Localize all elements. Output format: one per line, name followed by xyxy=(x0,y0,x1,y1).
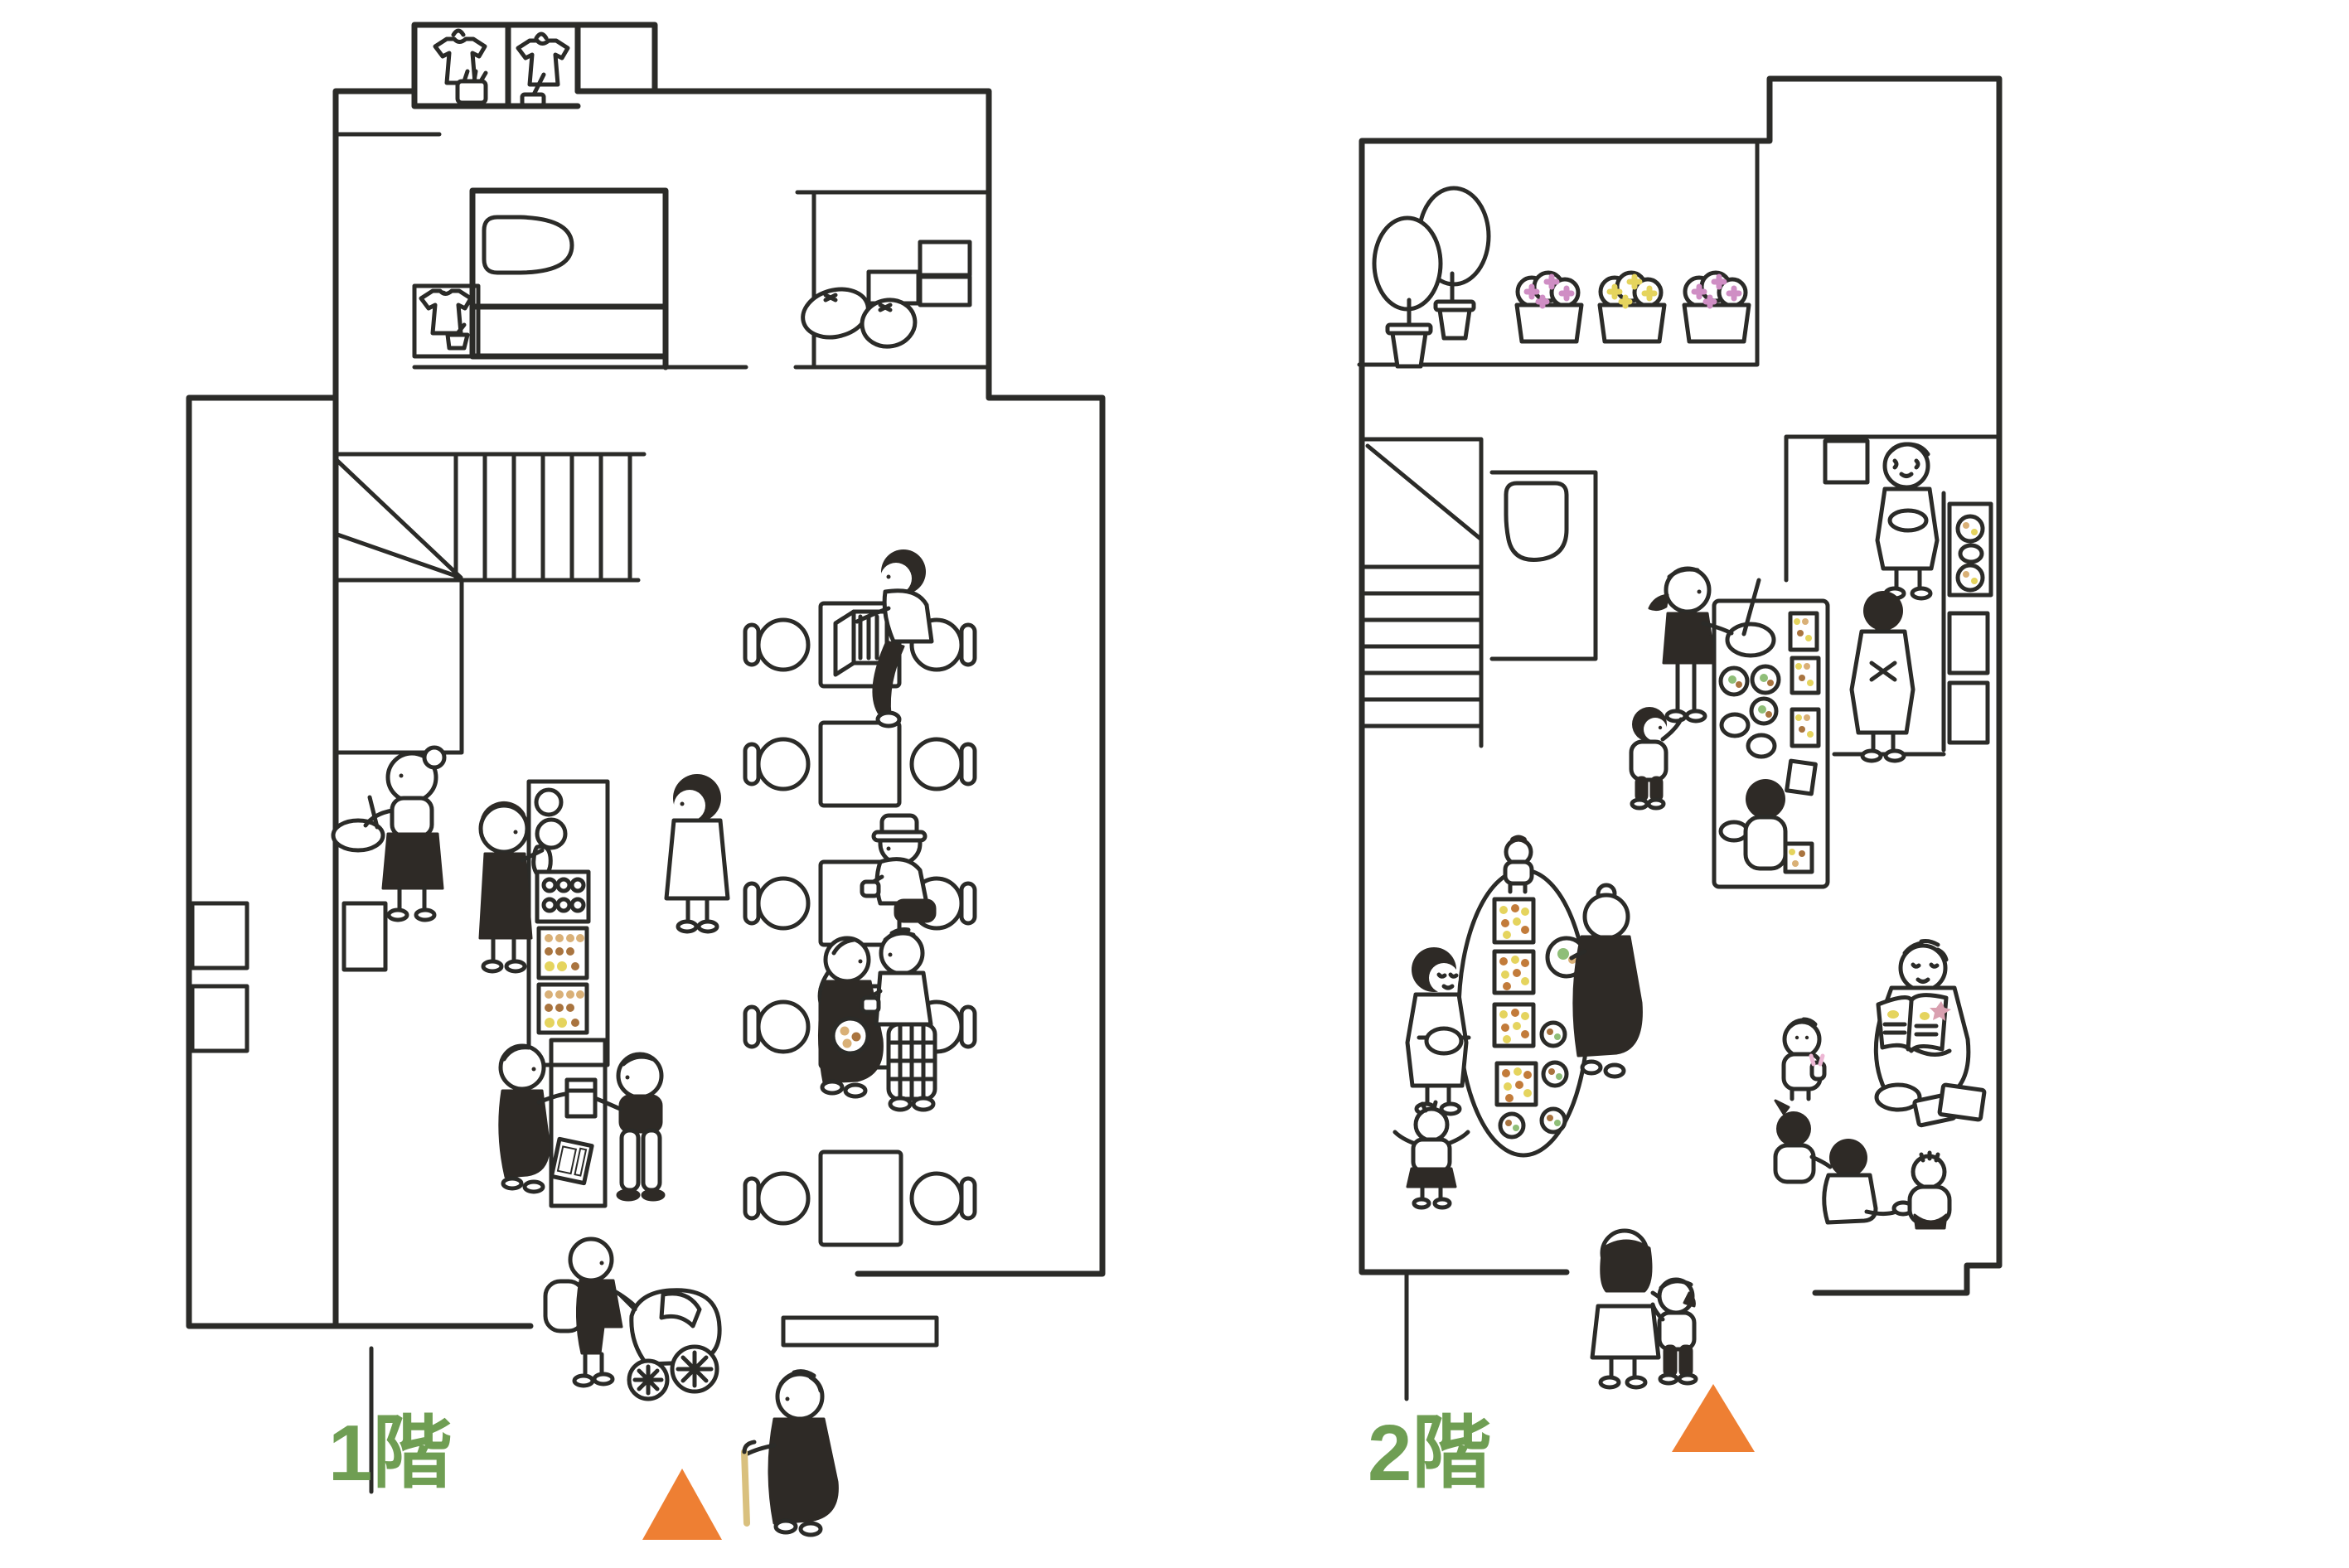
blue-pot-icon xyxy=(1426,1028,1461,1053)
leg xyxy=(1664,1346,1676,1376)
bowl-icon xyxy=(1721,822,1747,840)
wall-cabinet xyxy=(192,986,247,1051)
plate xyxy=(1960,545,1982,562)
hair-back xyxy=(1746,779,1785,819)
body xyxy=(1631,742,1666,780)
yellow-shirt-icon xyxy=(435,39,485,83)
mother-skirt xyxy=(1592,1306,1659,1357)
shoe xyxy=(1435,1199,1450,1207)
shoe xyxy=(525,1182,543,1192)
floor-1-plan: 1階 xyxy=(189,25,1102,1540)
person-boy-with-bowl xyxy=(1721,779,1785,869)
eye xyxy=(600,1261,604,1266)
apron xyxy=(1664,613,1715,663)
f2-entrance-triangle-icon xyxy=(1672,1384,1755,1452)
wall-cabinet xyxy=(192,903,247,968)
hair-bun xyxy=(424,748,444,767)
body xyxy=(1413,1140,1450,1171)
box-icon xyxy=(920,242,970,275)
basket-icon xyxy=(458,81,486,103)
head xyxy=(1913,1156,1945,1188)
person-man-with-crate xyxy=(835,549,932,726)
pink-bowl xyxy=(1722,714,1748,736)
face xyxy=(674,790,705,821)
skirt xyxy=(1407,1169,1455,1187)
person-grandmother-carrying-plate xyxy=(1877,444,1937,598)
floor-plan-illustration: 1階 xyxy=(0,0,2349,1568)
stair-treads xyxy=(1362,439,1481,746)
f1-laundry-corner xyxy=(414,286,478,356)
floor-2-plan: 2階 xyxy=(1359,79,1999,1498)
torso xyxy=(884,591,932,641)
shoe xyxy=(389,910,407,920)
shoe xyxy=(1606,1065,1624,1077)
eye xyxy=(887,575,891,579)
f1-bathroom xyxy=(472,191,666,367)
black-top xyxy=(620,1096,661,1132)
chair xyxy=(745,1174,808,1223)
shoe xyxy=(503,1178,521,1188)
pants-leg xyxy=(622,1130,638,1190)
eye xyxy=(1698,590,1702,594)
shoe xyxy=(1627,1377,1645,1387)
dustpan-icon xyxy=(448,335,467,348)
shoe xyxy=(642,1190,664,1200)
hair-strokes xyxy=(1921,1153,1938,1160)
ponytail xyxy=(1649,595,1668,610)
flower-planter-icon xyxy=(1684,273,1749,341)
chair xyxy=(912,1174,975,1223)
teacup-icon xyxy=(862,998,879,1012)
f2-reading-corner xyxy=(1775,941,1984,1229)
eye xyxy=(887,847,891,851)
chair xyxy=(912,739,975,789)
head xyxy=(1416,1109,1447,1140)
f2-balcony xyxy=(1374,188,1749,366)
body xyxy=(1824,1175,1876,1222)
person-walking-child xyxy=(1653,1280,1696,1383)
sack-icon xyxy=(797,283,874,345)
eye xyxy=(400,774,404,778)
shoe xyxy=(1414,1199,1429,1207)
shoe xyxy=(1886,751,1904,761)
apron xyxy=(480,854,531,938)
floor-2-label: 2階 xyxy=(1368,1409,1491,1498)
mother-hair-top xyxy=(1601,1241,1651,1291)
f1-entry-step xyxy=(783,1318,937,1345)
plate-icon xyxy=(1890,511,1926,530)
eye xyxy=(514,830,518,835)
f1-staircase xyxy=(336,454,644,580)
f2-oval-table xyxy=(1395,836,1641,1207)
shoe xyxy=(678,922,696,932)
cafe-table xyxy=(821,723,899,806)
torso xyxy=(392,798,432,836)
food-tray-icon xyxy=(539,985,587,1033)
pants-leg xyxy=(643,1130,660,1190)
person-woman-in-apron xyxy=(1852,591,1913,761)
person-baby-on-table xyxy=(1505,836,1532,892)
bread-bun xyxy=(537,820,565,848)
head-back xyxy=(1776,1111,1811,1146)
baby-stroller-icon xyxy=(620,1290,719,1399)
leg xyxy=(1680,1346,1692,1376)
person-boy-sitting xyxy=(1824,1139,1912,1222)
box-icon xyxy=(920,277,970,305)
apron-dress xyxy=(500,1091,549,1177)
head-back xyxy=(1829,1139,1867,1177)
eye xyxy=(786,1397,790,1401)
arm xyxy=(597,1099,620,1109)
shoe xyxy=(801,1523,821,1535)
head xyxy=(826,938,869,981)
bathtub-icon xyxy=(484,217,572,273)
shorts xyxy=(895,900,935,922)
ponytail xyxy=(1775,1101,1789,1114)
f2-toilet-room xyxy=(1492,472,1596,659)
f1-entrance-triangle-icon xyxy=(642,1469,722,1540)
food-tray-icon xyxy=(1494,1004,1533,1046)
shoe xyxy=(699,922,717,932)
flower-planter-icon xyxy=(1517,273,1581,341)
body xyxy=(1505,862,1532,883)
person-girl-ponytail xyxy=(1775,1101,1830,1182)
hat-brim xyxy=(874,832,925,840)
eye xyxy=(889,953,893,957)
eye xyxy=(859,960,863,964)
person-mother-and-child-walking xyxy=(1592,1231,1696,1387)
f2-kitchen xyxy=(1825,441,1991,761)
f2-island-counter xyxy=(1631,569,1828,887)
green-picture-book-icon xyxy=(1878,995,1951,1051)
f1-storage-room xyxy=(797,192,986,367)
body xyxy=(1746,817,1785,869)
cafe-chairs xyxy=(745,620,975,1223)
food-tray-icon xyxy=(1494,899,1533,942)
toilet-icon xyxy=(1506,483,1567,560)
food-tray-icon xyxy=(1497,1063,1536,1105)
black-dress xyxy=(769,1419,837,1523)
eye xyxy=(1659,726,1662,729)
cash-register-icon xyxy=(551,1139,592,1183)
shoe xyxy=(878,713,899,726)
shoe xyxy=(618,1190,639,1200)
shoe xyxy=(594,1374,613,1384)
bread-bun xyxy=(536,790,561,815)
pan-icon xyxy=(1958,565,1983,590)
shoe xyxy=(1679,1375,1696,1383)
teacup-icon xyxy=(862,882,879,896)
eye xyxy=(626,1076,630,1080)
head xyxy=(481,806,527,852)
shoe xyxy=(1660,1375,1677,1383)
chair xyxy=(745,1002,808,1052)
side-trays xyxy=(1785,613,1819,872)
shoe xyxy=(1649,800,1664,808)
shoe xyxy=(574,1376,593,1386)
pot xyxy=(1392,333,1426,366)
arm xyxy=(366,811,392,825)
person-grandmother-serving xyxy=(1547,885,1641,1077)
torso xyxy=(877,859,927,903)
dress xyxy=(666,820,728,898)
egg-tray-icon xyxy=(537,872,588,922)
stair-treads xyxy=(336,454,644,580)
shoe xyxy=(1582,1062,1601,1073)
legs xyxy=(1678,665,1694,713)
shoe xyxy=(483,961,501,971)
shoe xyxy=(845,1085,865,1096)
person-man-with-hat xyxy=(862,815,935,922)
dress xyxy=(1852,632,1913,733)
pan-icon xyxy=(1958,516,1983,541)
broom-head-icon xyxy=(522,94,544,105)
person-woman-stirring-bowl xyxy=(333,748,444,920)
f1-cafe-seating xyxy=(666,549,975,1245)
person-mother-stirring-bowl xyxy=(1649,569,1731,721)
chair xyxy=(745,878,808,928)
cupboard xyxy=(1949,683,1988,743)
person-woman-standing xyxy=(666,774,728,932)
eye xyxy=(680,802,685,806)
head-back xyxy=(1863,591,1903,631)
body xyxy=(1775,1145,1814,1182)
shoe xyxy=(1912,588,1930,598)
flower-planter-icon xyxy=(1600,273,1664,341)
shoe xyxy=(1687,711,1705,721)
cafe-table xyxy=(821,1152,901,1245)
apron xyxy=(383,834,443,888)
food-tray-icon xyxy=(539,928,587,978)
chair xyxy=(745,620,808,670)
plaid-pants xyxy=(889,1024,935,1099)
cookie-plate-icon xyxy=(833,1019,868,1053)
potted-tree-icon xyxy=(1374,218,1441,309)
kitchen-window xyxy=(1825,441,1867,482)
shoe xyxy=(1862,751,1881,761)
shoe xyxy=(1601,1377,1619,1387)
pot xyxy=(1440,310,1470,338)
person-toddler-with-bunny xyxy=(1784,1019,1824,1099)
head xyxy=(1585,895,1628,938)
head xyxy=(570,1239,612,1280)
shoe xyxy=(890,1098,910,1110)
shoe xyxy=(913,1098,933,1110)
person-pushing-stroller xyxy=(545,1239,719,1399)
dark-dress xyxy=(1574,936,1642,1056)
food-tray-icon xyxy=(1494,951,1533,993)
cane-icon xyxy=(744,1452,747,1523)
kitchen-sink xyxy=(344,903,385,970)
cupboard xyxy=(1949,613,1988,673)
shoe xyxy=(416,910,434,920)
pink-bowl xyxy=(1748,735,1775,757)
eye xyxy=(532,1067,536,1072)
person-toddler-arms-up xyxy=(1395,1102,1468,1207)
f1-kitchen xyxy=(192,748,444,1051)
legs xyxy=(400,888,424,912)
shoe xyxy=(776,1521,796,1532)
torso xyxy=(876,973,931,1024)
plan-svg: 1階 xyxy=(0,0,2349,1568)
person-staff-arranging-food xyxy=(480,802,542,971)
leg xyxy=(1651,777,1662,801)
chair xyxy=(745,739,808,789)
blue-bowl-icon xyxy=(1727,624,1774,656)
legs xyxy=(493,940,514,963)
person-baby-sitting xyxy=(1910,1153,1949,1228)
body xyxy=(1659,1313,1694,1349)
f1-food-display-counter xyxy=(480,782,608,1065)
shoe xyxy=(822,1082,842,1093)
f2-staircase xyxy=(1362,439,1481,746)
shoe xyxy=(1632,800,1647,808)
shoe xyxy=(506,961,525,971)
floor-1-label: 1階 xyxy=(328,1409,452,1498)
legs xyxy=(688,900,707,923)
person-elderly-woman-cane xyxy=(744,1372,837,1535)
leg xyxy=(1636,777,1647,801)
paper-bag-icon xyxy=(567,1080,595,1116)
